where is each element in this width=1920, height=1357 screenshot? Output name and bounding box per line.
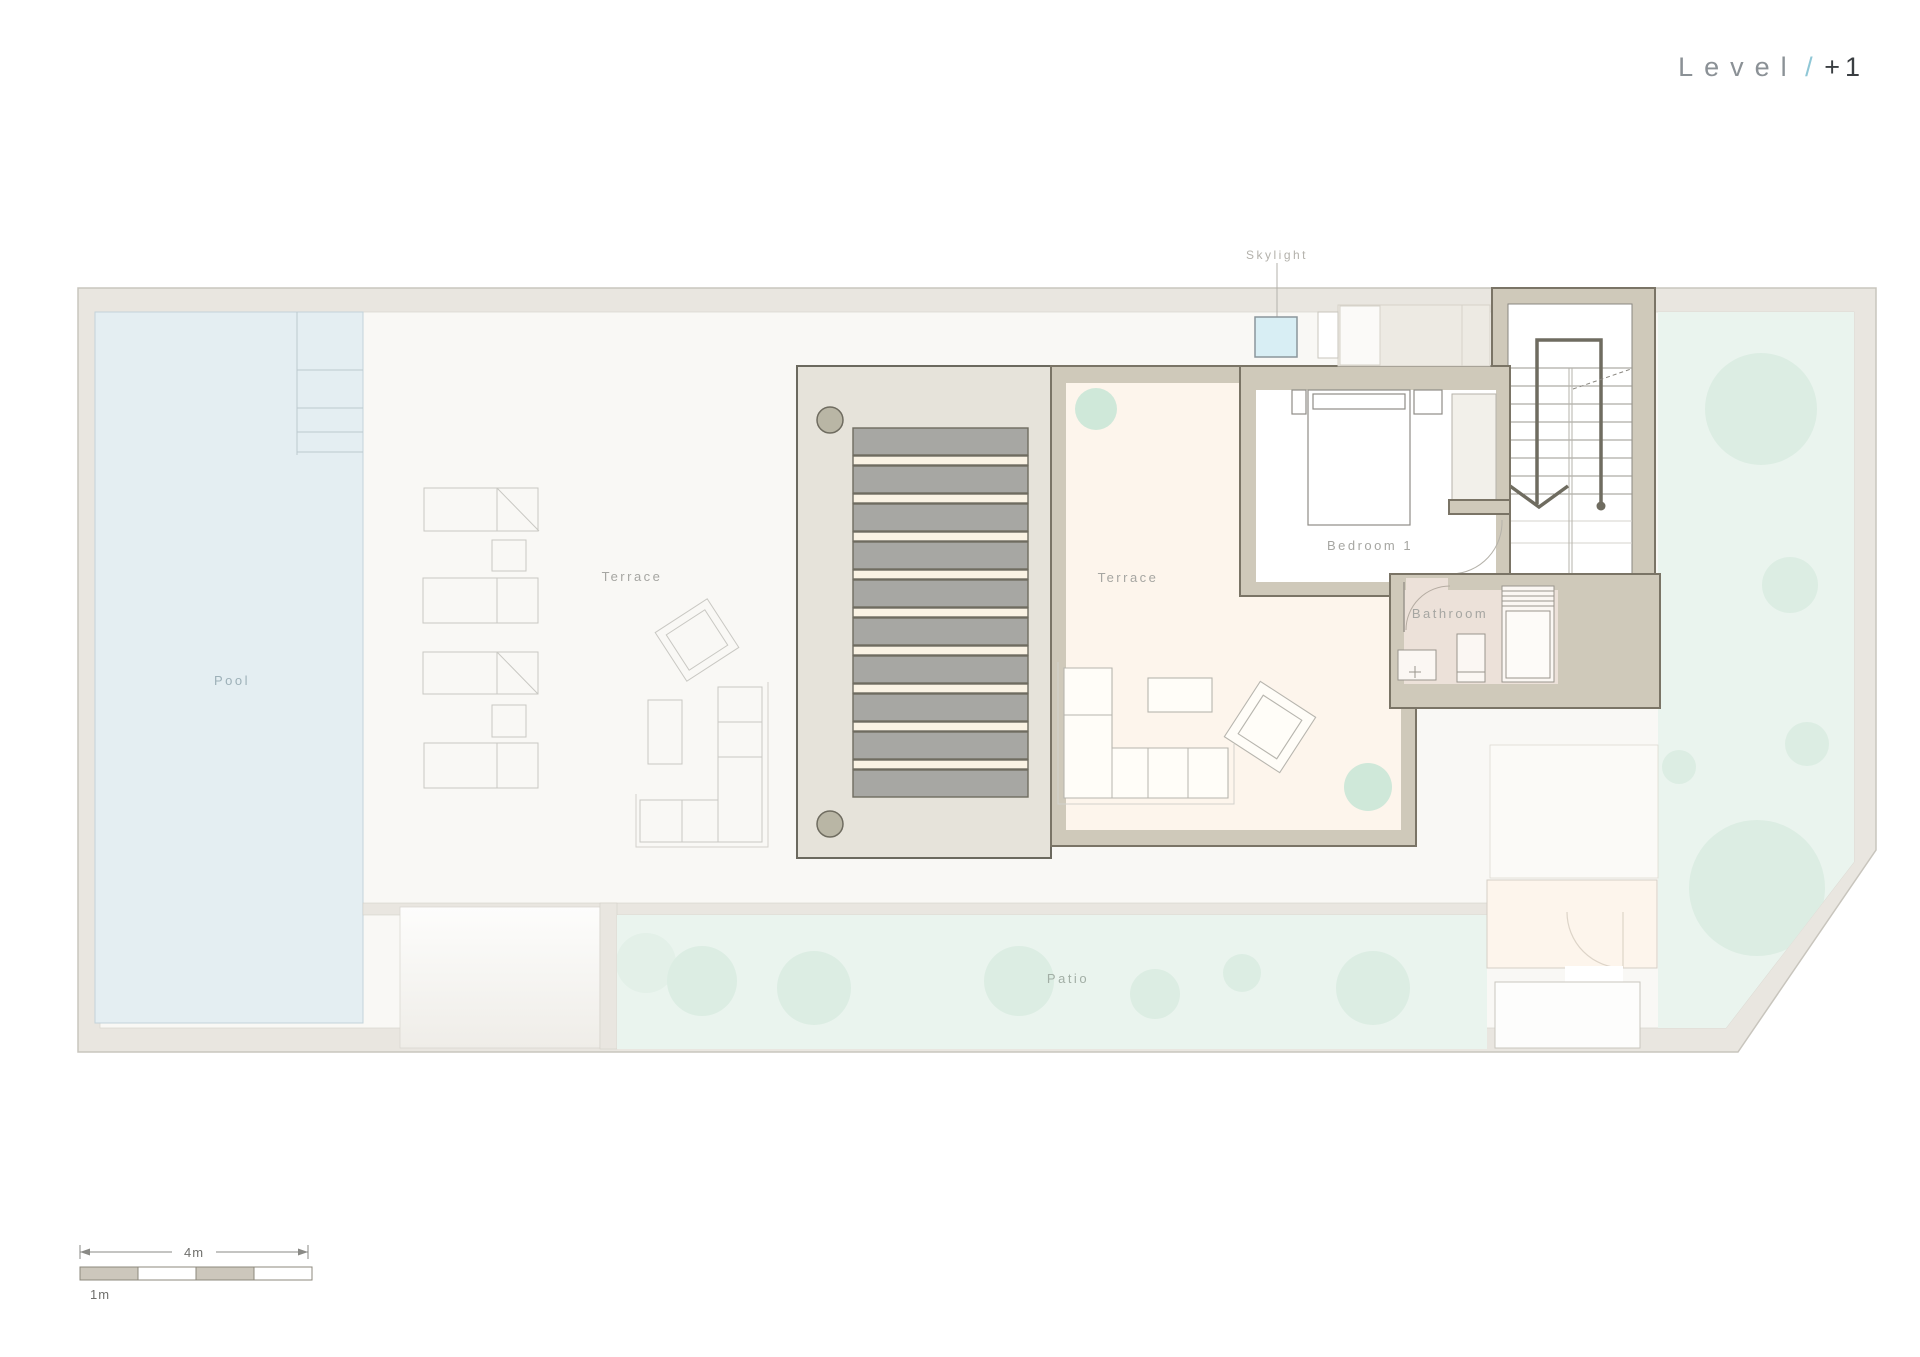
pool-area xyxy=(95,312,363,1023)
bed-pillow xyxy=(1313,394,1405,409)
bathroom-shower xyxy=(1502,586,1554,682)
terrace-main-label: Terrace xyxy=(1098,570,1159,585)
bathroom-label: Bathroom xyxy=(1412,606,1488,621)
scale-bar: 4m 1m xyxy=(80,1245,312,1302)
annex-patio xyxy=(1487,880,1657,968)
floor-plan-page: Level / +1 xyxy=(0,0,1920,1357)
coffee-table xyxy=(1148,678,1212,712)
skylight-label: Skylight xyxy=(1246,248,1308,262)
bed xyxy=(1308,390,1410,525)
nightstand xyxy=(1414,390,1442,414)
pergola-column xyxy=(817,811,843,837)
bottom-right-annex xyxy=(1487,745,1658,1048)
bathroom-sink xyxy=(1398,650,1436,680)
wall-stub xyxy=(1449,500,1510,514)
shaft xyxy=(1318,312,1338,358)
terrace-tree xyxy=(1075,388,1117,430)
floor-plan-drawing: Pool Terrace Terrace Bedroom 1 Bathroom … xyxy=(0,0,1920,1357)
scale-total-label: 4m xyxy=(184,1245,204,1260)
bedroom xyxy=(1240,366,1510,596)
terrace-tree xyxy=(1344,763,1392,811)
patio-label: Patio xyxy=(1047,971,1089,986)
arrow-right xyxy=(298,1249,308,1256)
skylight-glass xyxy=(1255,317,1297,357)
stairwell xyxy=(1492,288,1655,592)
pool-label: Pool xyxy=(214,673,250,688)
bathroom xyxy=(1390,574,1660,708)
pergola-slats xyxy=(853,428,1028,797)
terrace-outdoor-label: Terrace xyxy=(602,569,663,584)
arrow-left xyxy=(80,1249,90,1256)
annex-door-gap xyxy=(1565,966,1623,982)
nightstand xyxy=(1292,390,1306,414)
wardrobe xyxy=(1452,394,1496,506)
pergola-column xyxy=(817,407,843,433)
bathroom-toilet xyxy=(1457,634,1485,682)
ramp-divider xyxy=(600,903,617,1049)
annex-room xyxy=(1495,982,1640,1048)
bedroom-label: Bedroom 1 xyxy=(1327,538,1413,553)
scale-unit-label: 1m xyxy=(90,1287,110,1302)
annex-ground xyxy=(1490,745,1658,878)
pergola xyxy=(797,366,1051,858)
ramp-area xyxy=(400,907,600,1048)
